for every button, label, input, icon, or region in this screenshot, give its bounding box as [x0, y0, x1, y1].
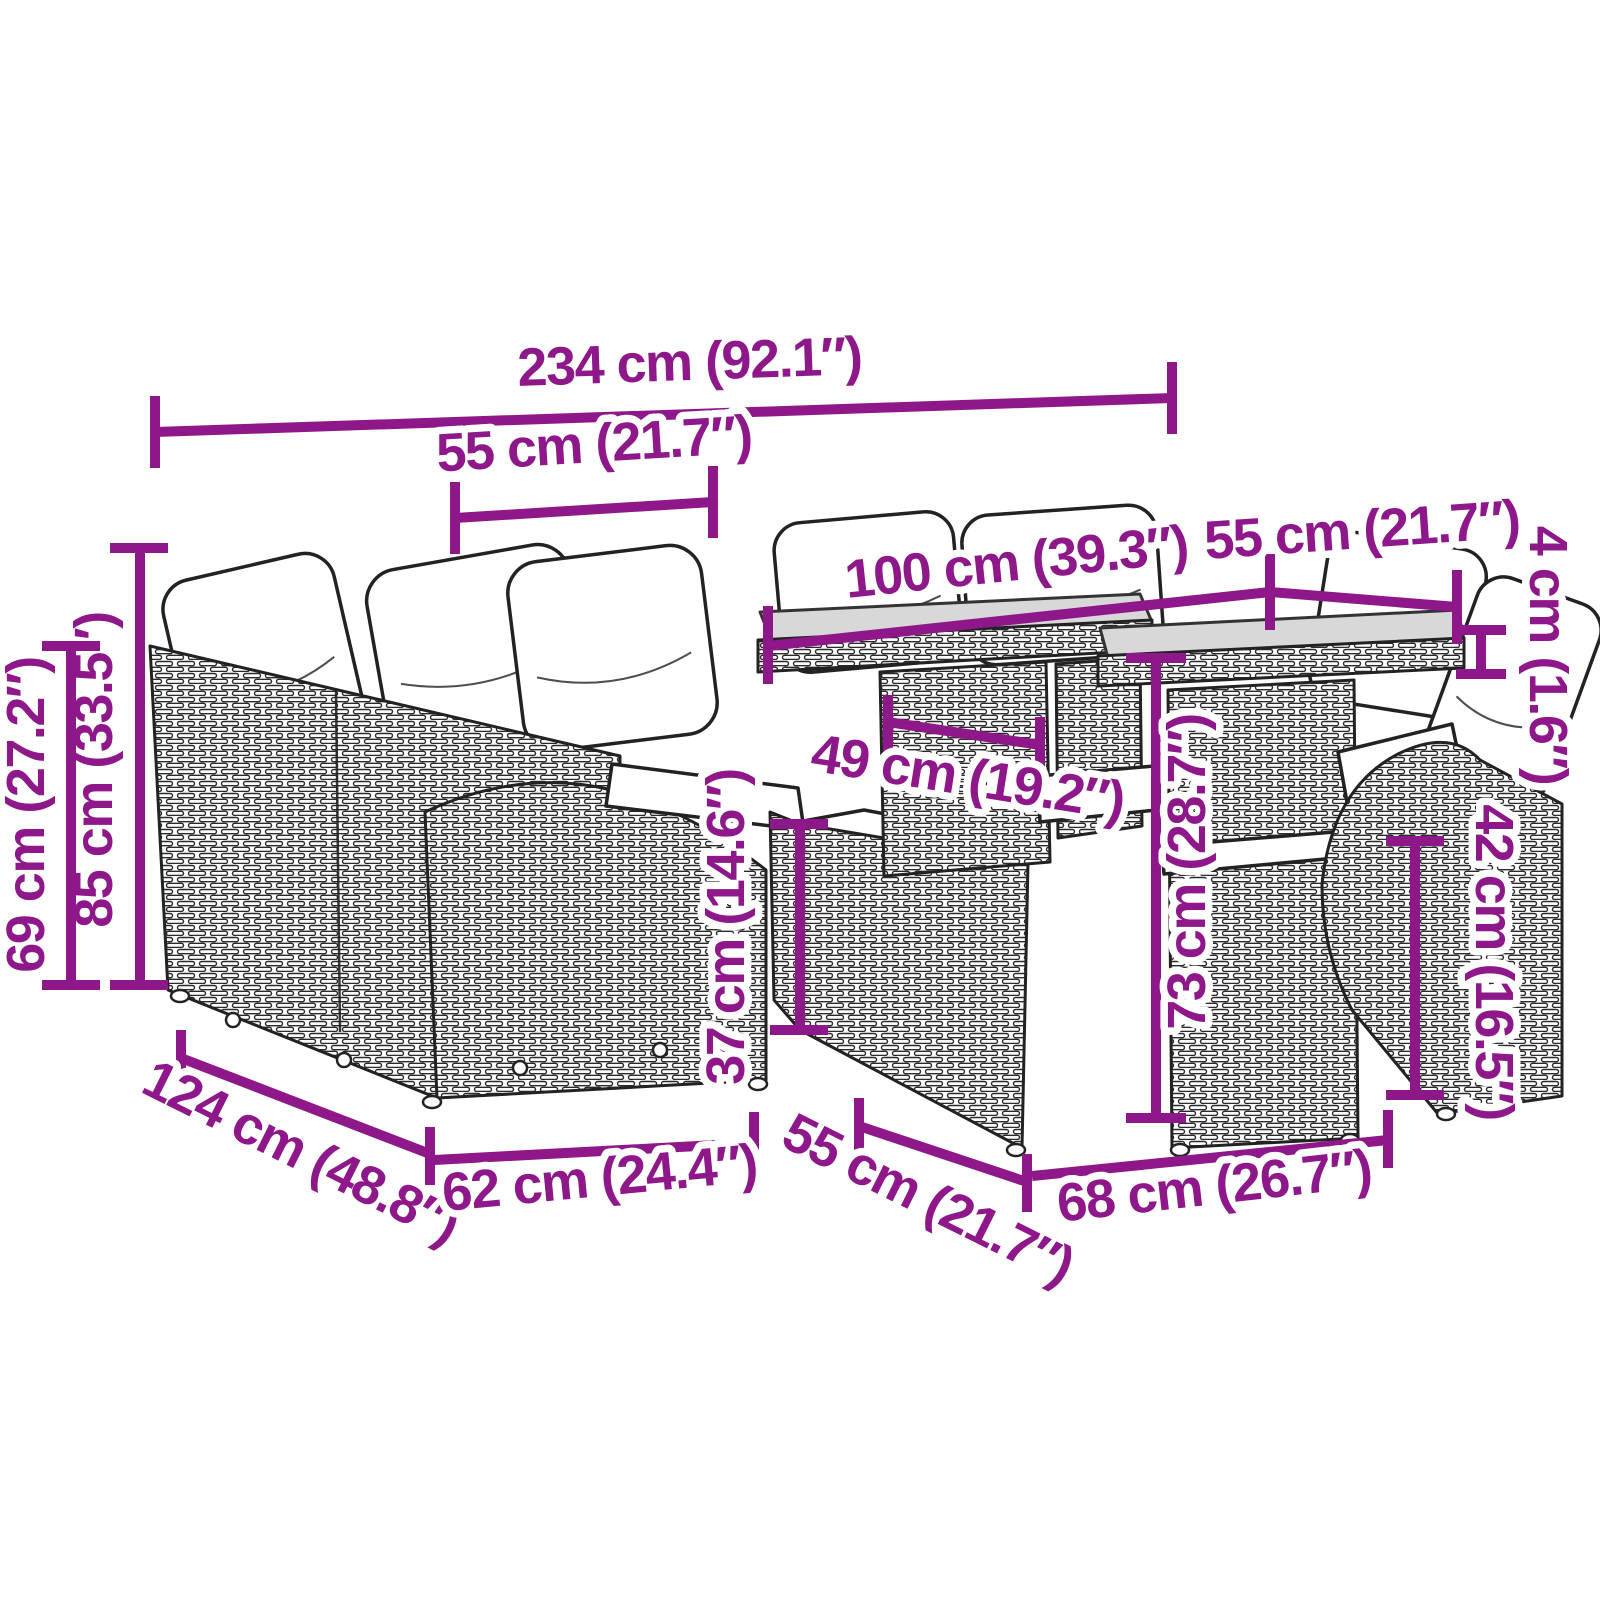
screw-hole: [513, 1061, 527, 1075]
back-pillow: [504, 542, 721, 754]
dimension-label: 4 cm (1.6″): [1518, 526, 1578, 784]
dimension-line: [455, 502, 713, 518]
furniture-dimension-diagram: 234 cm (92.1″)55 cm (21.7″)100 cm (39.3″…: [0, 0, 1600, 1600]
foot: [423, 1096, 441, 1108]
dimension-back-section-width: 55 cm (21.7″): [435, 404, 754, 554]
dimension-backrest-height: 85 cm (33.5″): [64, 548, 168, 985]
dimension-label: 73 cm (28.7″): [1157, 714, 1217, 1030]
screw-hole: [337, 1053, 351, 1067]
screw-hole: [226, 1013, 240, 1027]
foot: [171, 990, 189, 1002]
dimension-label: 234 cm (92.1″): [516, 326, 862, 398]
diagram-page: 234 cm (92.1″)55 cm (21.7″)100 cm (39.3″…: [0, 0, 1600, 1600]
dimension-ottoman-width: 55 cm (21.7″): [773, 1098, 1082, 1296]
foot: [1171, 1144, 1189, 1156]
screw-hole: [653, 1043, 667, 1057]
foot: [1437, 1108, 1455, 1120]
dimension-seat-section-width: 62 cm (24.4″): [434, 1112, 759, 1223]
dimension-label: 37 cm (14.6″): [696, 769, 756, 1085]
dimension-label: 42 cm (16.5″): [1464, 804, 1524, 1120]
dimension-label: 69 cm (27.2″): [0, 657, 56, 973]
dimension-label: 55 cm (21.7″): [773, 1102, 1082, 1296]
